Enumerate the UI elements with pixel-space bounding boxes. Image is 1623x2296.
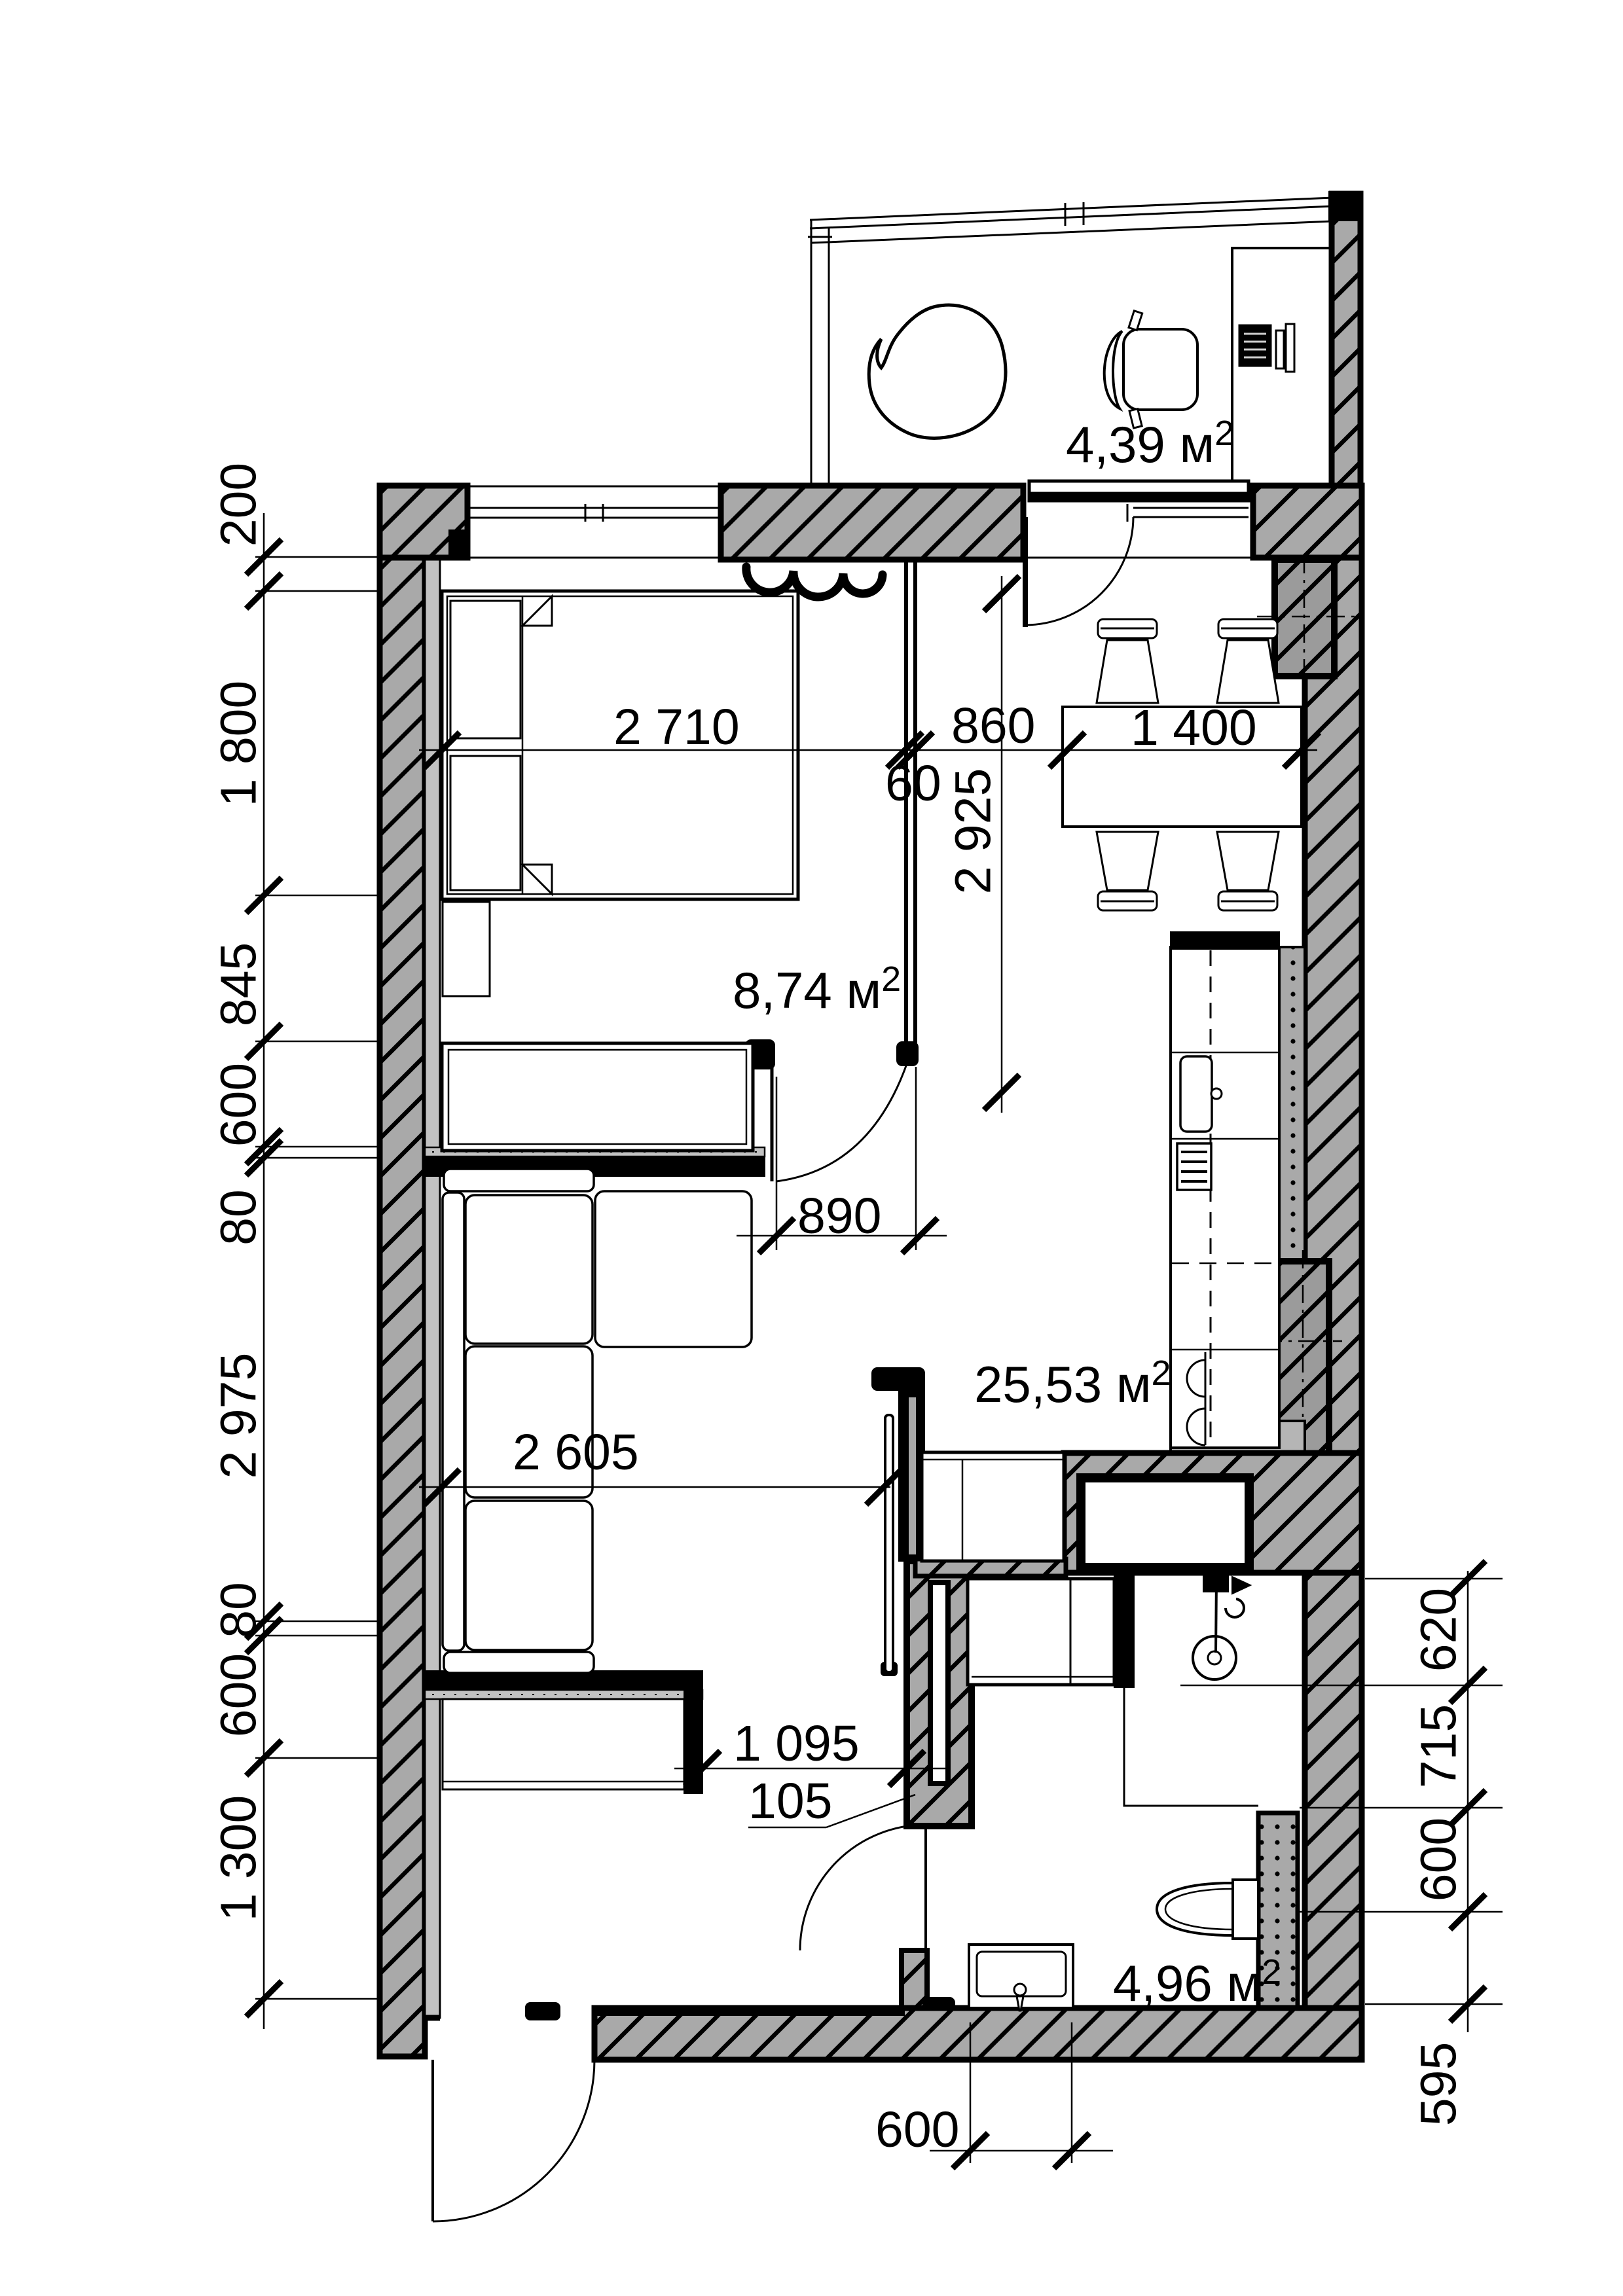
svg-text:600: 600 — [210, 1063, 266, 1147]
svg-text:715: 715 — [1410, 1704, 1467, 1788]
svg-text:80: 80 — [210, 1189, 266, 1246]
svg-text:2 605: 2 605 — [513, 1424, 639, 1480]
svg-text:600: 600 — [210, 1653, 266, 1737]
svg-text:60: 60 — [885, 755, 941, 812]
svg-text:2 925: 2 925 — [945, 768, 1001, 895]
svg-text:1 800: 1 800 — [210, 681, 266, 807]
svg-text:2 710: 2 710 — [613, 699, 740, 755]
svg-text:105: 105 — [748, 1773, 832, 1829]
svg-text:620: 620 — [1410, 1588, 1467, 1672]
svg-text:595: 595 — [1410, 2042, 1467, 2126]
svg-text:600: 600 — [1410, 1818, 1467, 1901]
svg-text:600: 600 — [875, 2102, 959, 2158]
svg-text:1 095: 1 095 — [733, 1715, 860, 1772]
svg-text:200: 200 — [210, 463, 266, 547]
svg-text:1 300: 1 300 — [210, 1795, 266, 1922]
svg-text:25,53 м2: 25,53 м2 — [974, 1354, 1171, 1413]
svg-text:890: 890 — [797, 1188, 881, 1244]
svg-text:2 975: 2 975 — [210, 1353, 266, 1479]
svg-text:4,39 м2: 4,39 м2 — [1066, 414, 1234, 473]
svg-text:860: 860 — [951, 698, 1035, 754]
svg-text:80: 80 — [210, 1582, 266, 1638]
svg-text:8,74 м2: 8,74 м2 — [733, 960, 901, 1019]
svg-text:1 400: 1 400 — [1131, 700, 1257, 756]
svg-text:4,96 м2: 4,96 м2 — [1113, 1952, 1281, 2012]
svg-text:845: 845 — [210, 942, 266, 1026]
